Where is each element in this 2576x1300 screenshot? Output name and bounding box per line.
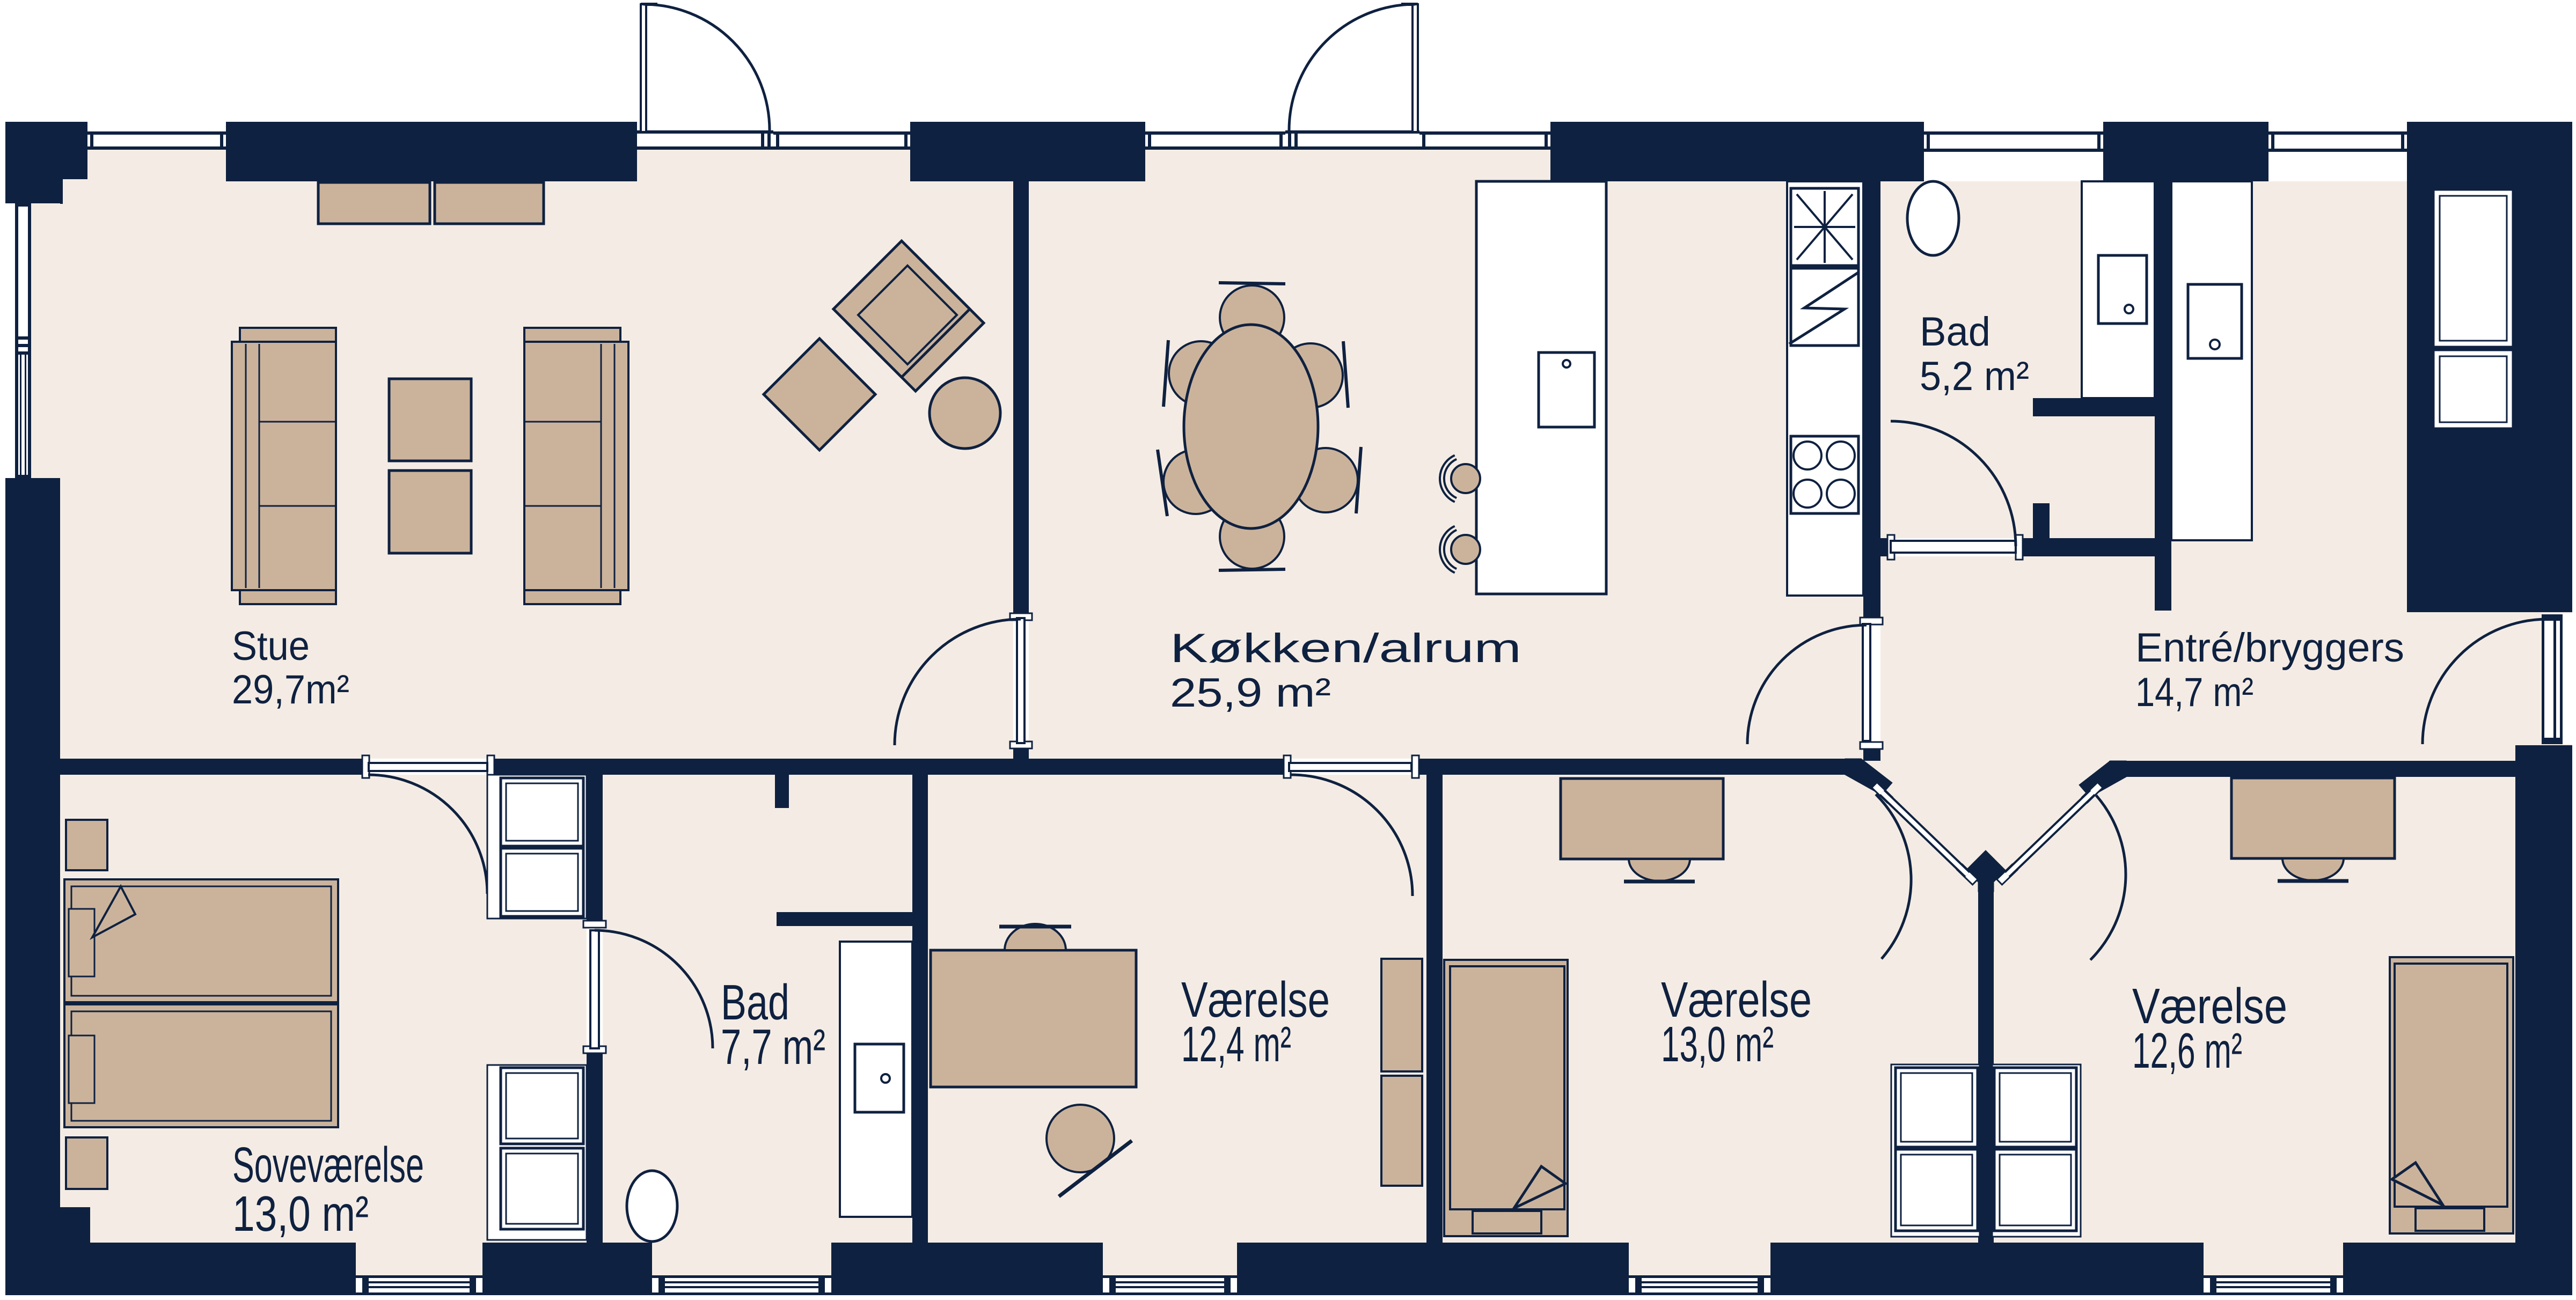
svg-text:Stue: Stue xyxy=(232,623,310,669)
svg-text:12,4 m²: 12,4 m² xyxy=(1181,1016,1291,1072)
svg-text:13,0 m²: 13,0 m² xyxy=(1661,1016,1774,1072)
svg-text:5,2 m²: 5,2 m² xyxy=(1920,354,2029,399)
svg-text:13,0 m²: 13,0 m² xyxy=(232,1186,369,1242)
svg-text:Køkken/alrum: Køkken/alrum xyxy=(1170,626,1521,671)
svg-text:14,7 m²: 14,7 m² xyxy=(2135,670,2253,715)
svg-text:29,7m²: 29,7m² xyxy=(232,667,349,713)
svg-text:Soveværelse: Soveværelse xyxy=(232,1137,424,1193)
svg-text:12,6 m²: 12,6 m² xyxy=(2132,1023,2242,1078)
svg-text:Entré/bryggers: Entré/bryggers xyxy=(2135,625,2404,671)
svg-text:25,9 m²: 25,9 m² xyxy=(1170,670,1331,716)
svg-text:7,7 m²: 7,7 m² xyxy=(721,1019,825,1075)
svg-text:Bad: Bad xyxy=(1920,309,1990,355)
